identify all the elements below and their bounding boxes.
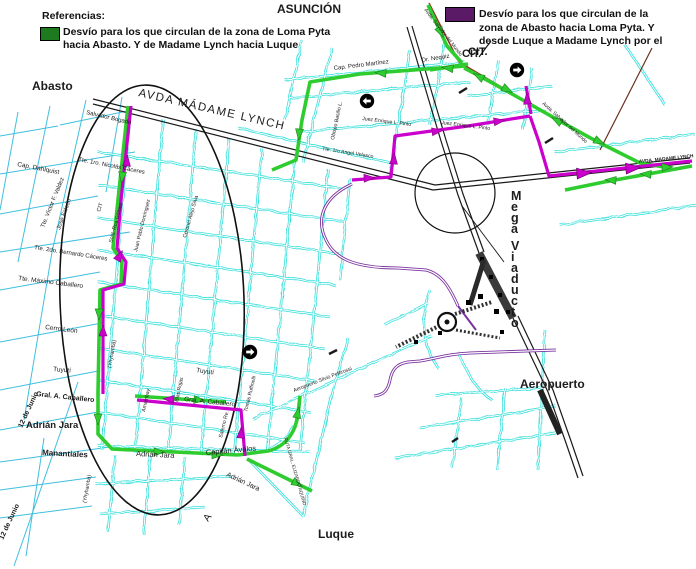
legend-line: zona de Abasto hacia Loma Pyta. Y — [479, 22, 679, 36]
legend-purple-swatch — [445, 7, 475, 22]
legend-line: Desvío para los que circulan de la zona … — [63, 26, 330, 40]
direction-badge-icon — [360, 94, 374, 108]
legend-cit-line: CIT. — [468, 46, 488, 60]
legend-title: Referencias: — [42, 10, 330, 24]
map-label: Adrián Jara — [225, 471, 260, 493]
map-labels: ASUNCIÓNAbastoAeropuertoLuqueAdrián Jara… — [0, 1, 694, 541]
map-label: AVDA MÁDAME LYNCH — [137, 86, 286, 132]
map-label: 12 de Junio — [0, 503, 21, 541]
circle-annotation — [415, 153, 495, 233]
map-label: (Yhyhambá) — [107, 339, 118, 368]
main-roads — [93, 3, 690, 478]
map-label: A — [201, 512, 214, 524]
map-label: Tuyutí — [53, 366, 72, 375]
viaduct-ramps — [322, 184, 556, 396]
map-canvas: ASUNCIÓNAbastoAeropuertoLuqueAdrián Jara… — [0, 0, 696, 569]
street-grid-wavy — [96, 40, 696, 535]
map-label: Tuyutí — [196, 367, 215, 376]
map-label: MegaViaducto — [511, 189, 521, 330]
map-label: RUTA GRAL. ELIZARDO AQUINO — [283, 437, 307, 506]
map-label: Avda. Salvador del Mundo — [541, 101, 589, 145]
legend-references: Referencias: Desvío para los que circula… — [28, 10, 330, 53]
viaduct — [479, 253, 560, 434]
map-label: Gral. A. Caballero — [36, 391, 95, 404]
map-label: Salerno Re. — [218, 410, 230, 438]
map-label: Tte. 2do. Bernardo Cáceres — [34, 245, 108, 263]
street-grid-wavy — [96, 40, 696, 535]
legend-line: Desvío para los que circulan de la — [479, 8, 679, 22]
map-label: Dr. Nequiz — [421, 54, 450, 64]
map-label: Obispo Basilio L. — [330, 101, 344, 140]
detour-map: ASUNCIÓNAbastoAeropuertoLuqueAdrián Jara… — [0, 0, 696, 569]
legend-line: desde Luque a Madame Lynch por el — [479, 35, 679, 49]
map-label: Adrián Jara — [26, 420, 79, 431]
legend-detour-purple: Desvío para los que circulan de la zona … — [479, 8, 679, 49]
map-label: Luque — [318, 527, 354, 541]
direction-badges — [243, 63, 524, 359]
map-label: Tte. Máximo Caballero — [18, 275, 84, 290]
map-label: Tomás Ruffinelli — [243, 376, 258, 413]
direction-badge-icon — [243, 345, 257, 359]
map-label: Adrián Jara — [136, 449, 176, 460]
map-label: Abasto — [32, 79, 73, 93]
direction-badge-icon — [510, 63, 524, 77]
route-green-arrows — [94, 26, 673, 490]
map-label: Aeropuerto — [520, 377, 585, 391]
legend-line: hacia Abasto. Y de Madame Lynch hacia Lu… — [63, 39, 330, 53]
map-label: CIT — [96, 202, 105, 213]
legend-green-swatch — [40, 27, 60, 41]
map-label: Manantiales — [42, 448, 89, 459]
